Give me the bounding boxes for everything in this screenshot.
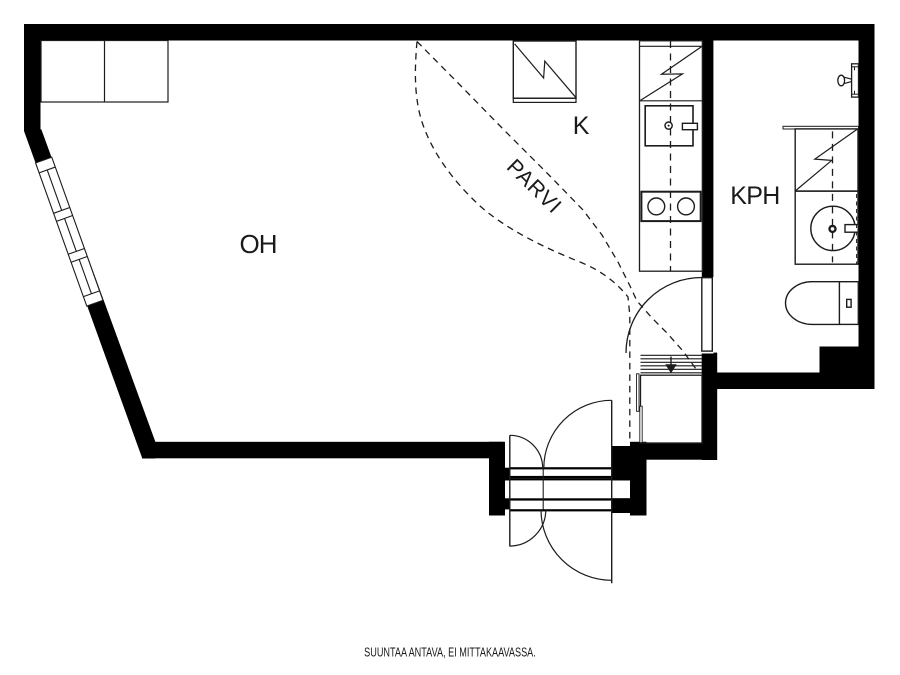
svg-text:SUUNTAA ANTAVA, EI MITTAKAAVAS: SUUNTAA ANTAVA, EI MITTAKAAVASSA.	[364, 646, 536, 660]
svg-text:KPH: KPH	[730, 182, 779, 210]
svg-text:K: K	[573, 112, 590, 140]
svg-text:OH: OH	[240, 229, 277, 259]
